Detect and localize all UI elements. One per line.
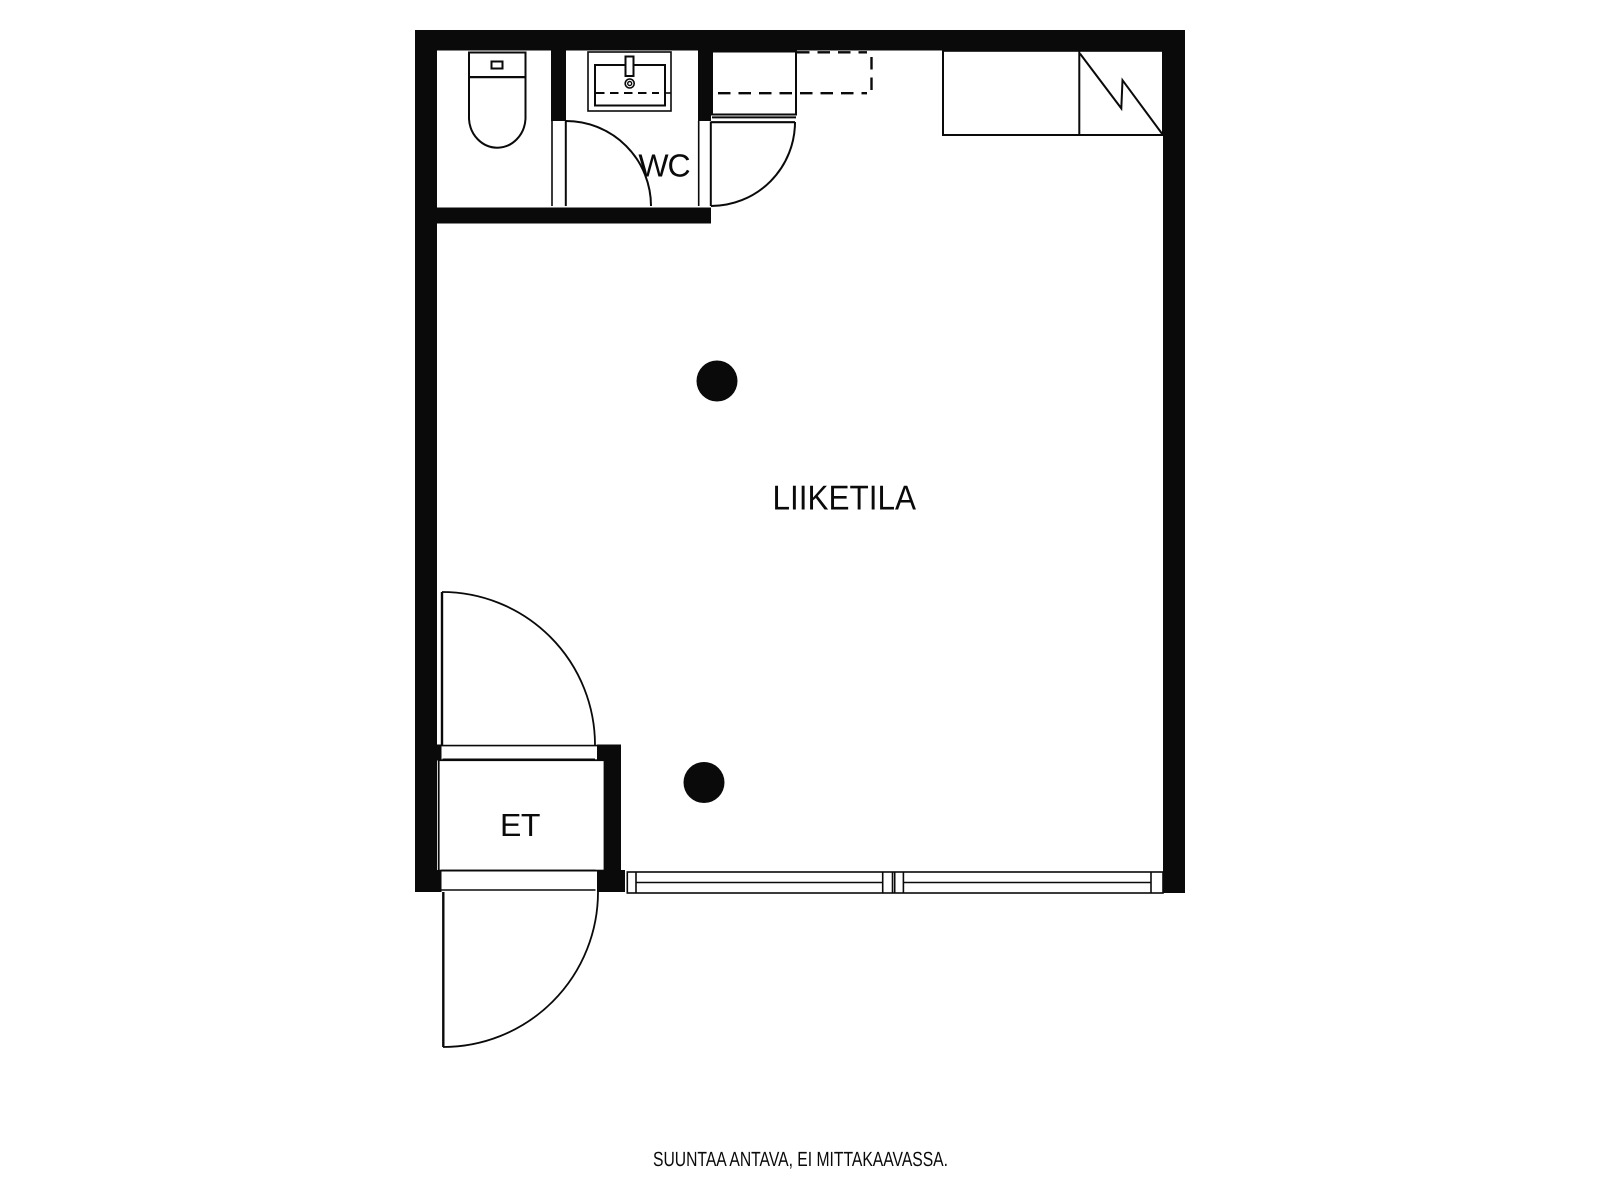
svg-text:ET: ET xyxy=(500,807,540,843)
svg-text:SUUNTAA ANTAVA, EI MITTAKAAVAS: SUUNTAA ANTAVA, EI MITTAKAAVASSA. xyxy=(653,1148,948,1171)
svg-text:LIIKETILA: LIIKETILA xyxy=(773,480,917,518)
svg-text:WC: WC xyxy=(638,148,689,184)
